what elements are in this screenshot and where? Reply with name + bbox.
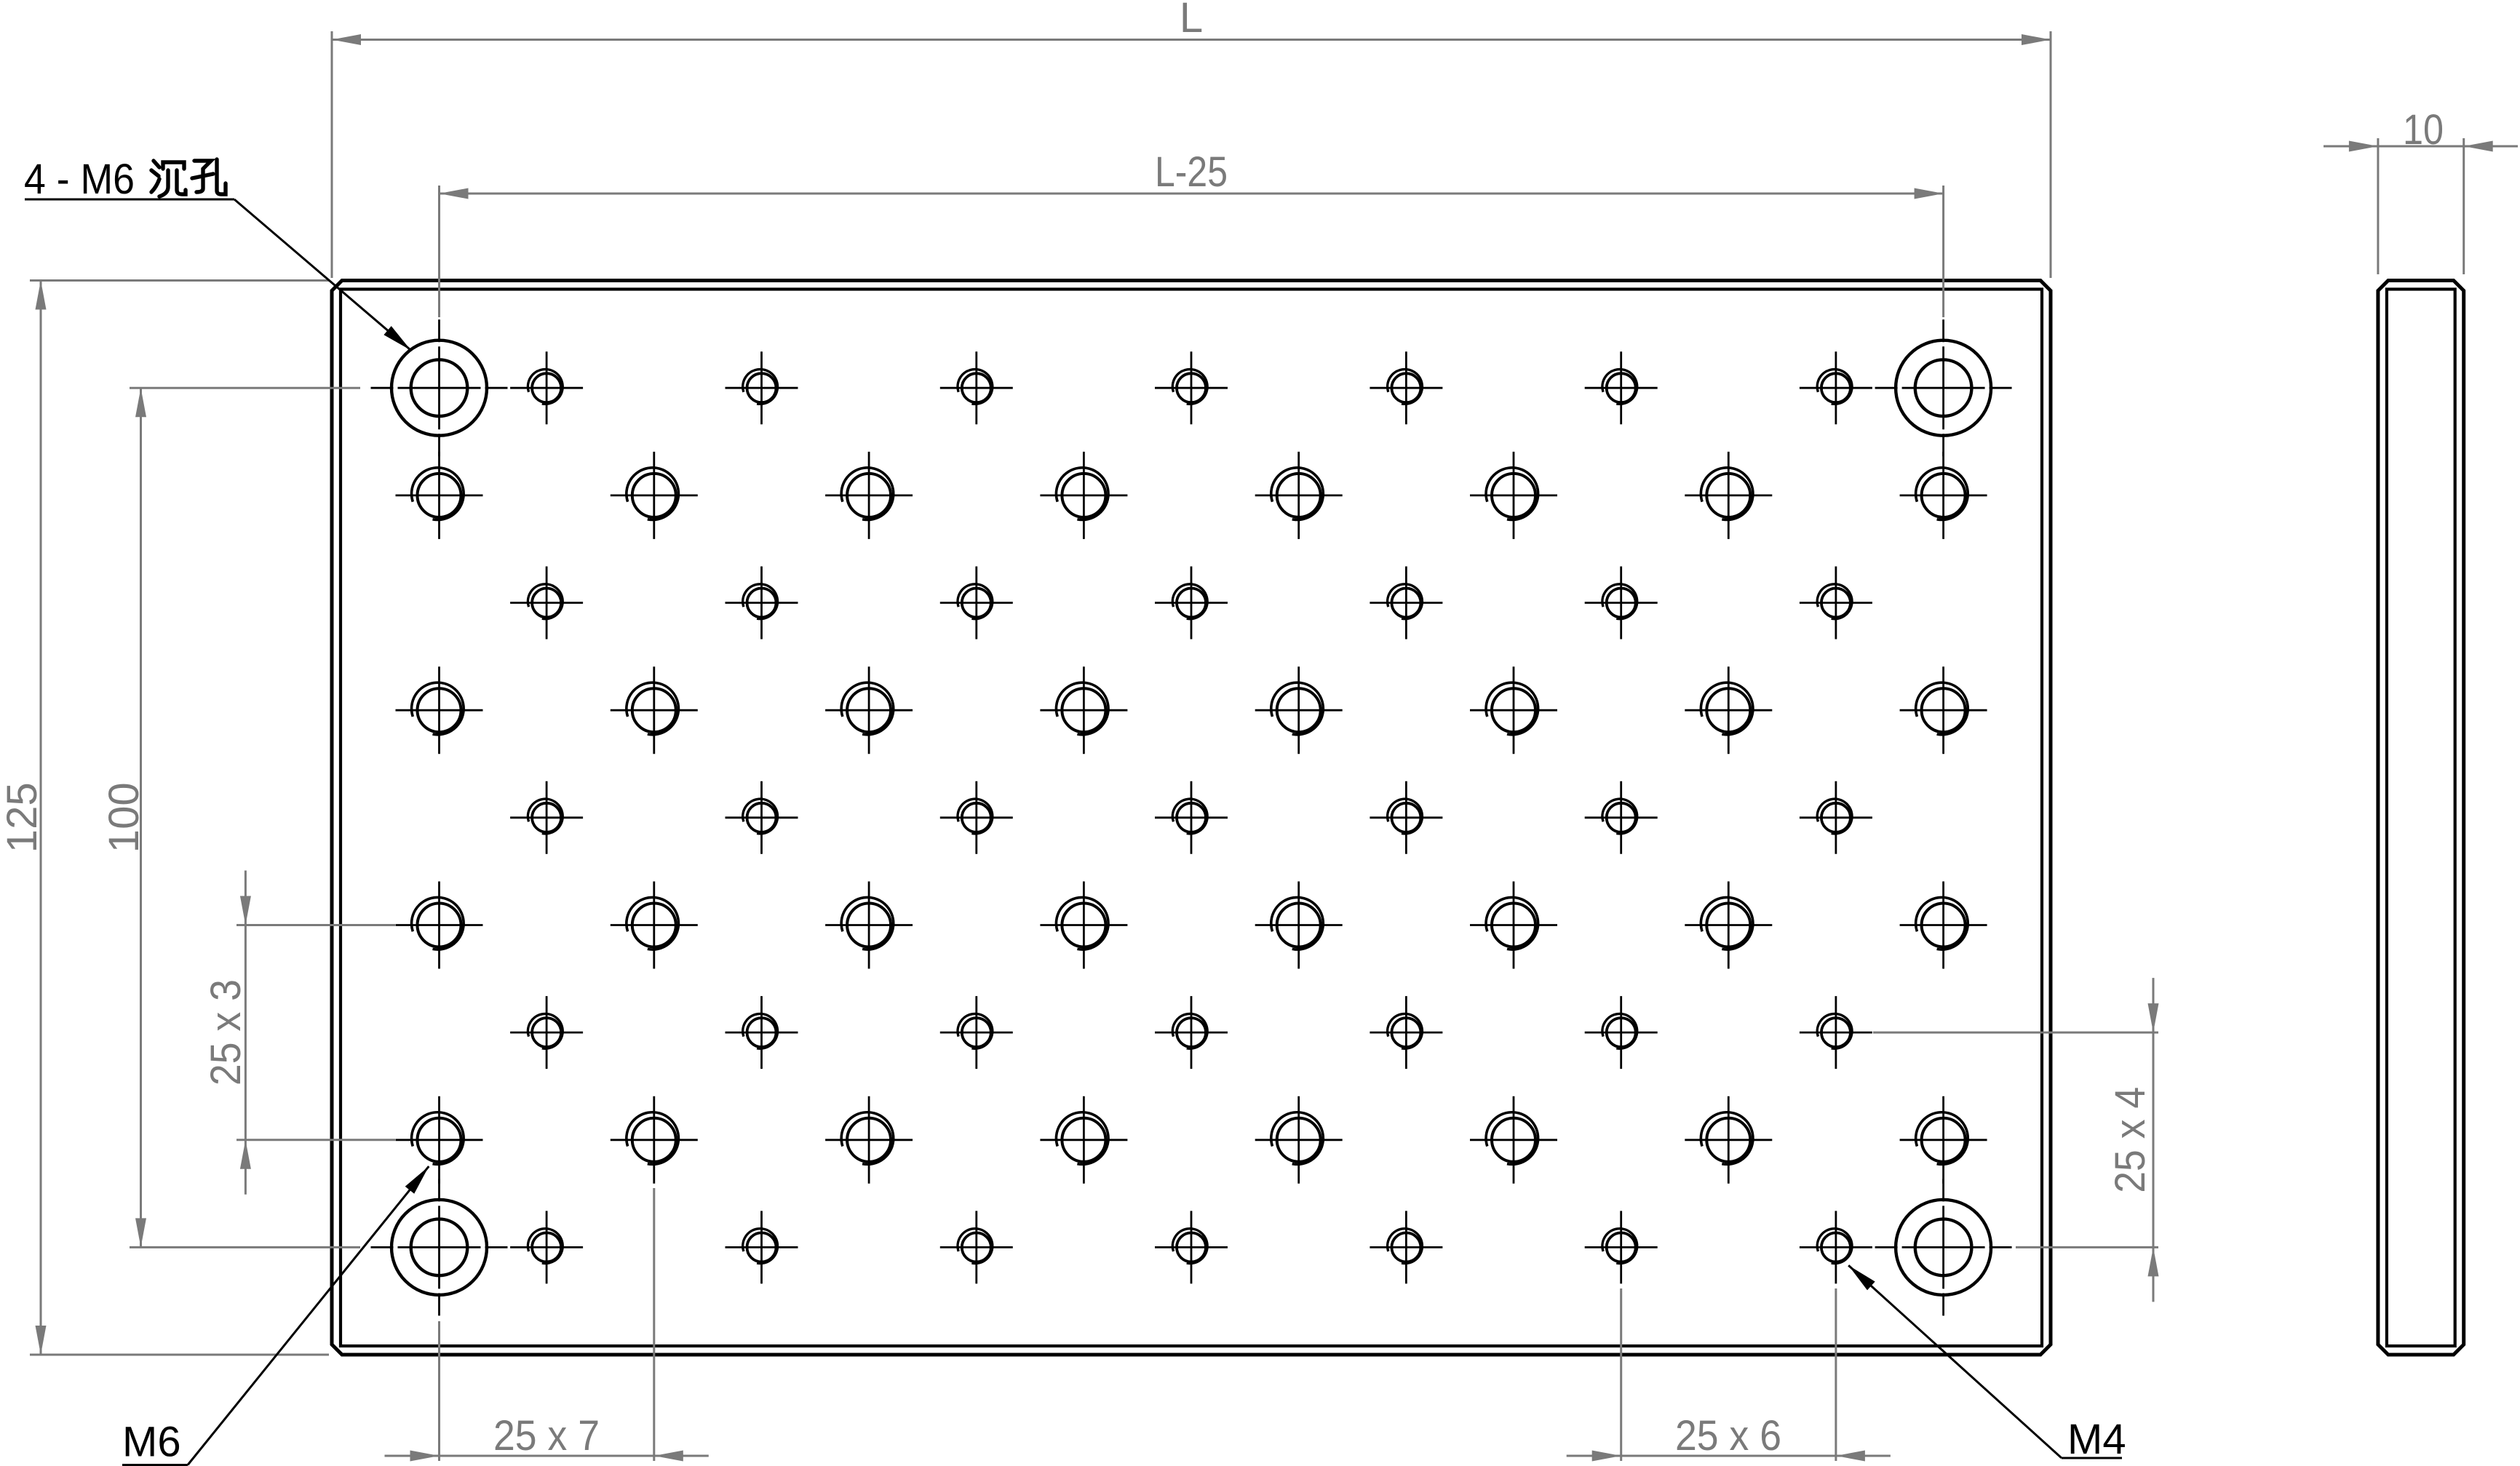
svg-text:4 - M6: 4 - M6	[24, 156, 135, 203]
svg-text:L: L	[1180, 0, 1203, 41]
svg-text:25 x 6: 25 x 6	[1675, 1412, 1781, 1459]
svg-text:25 x 3: 25 x 3	[202, 979, 250, 1085]
svg-text:M4: M4	[2067, 1416, 2126, 1463]
svg-text:25 x 4: 25 x 4	[2107, 1087, 2154, 1193]
svg-text:10: 10	[2403, 106, 2444, 154]
svg-text:100: 100	[100, 782, 148, 853]
svg-text:M6: M6	[122, 1419, 181, 1466]
svg-text:L-25: L-25	[1155, 148, 1228, 196]
svg-text:25 x 7: 25 x 7	[493, 1412, 600, 1459]
svg-text:125: 125	[0, 782, 46, 853]
